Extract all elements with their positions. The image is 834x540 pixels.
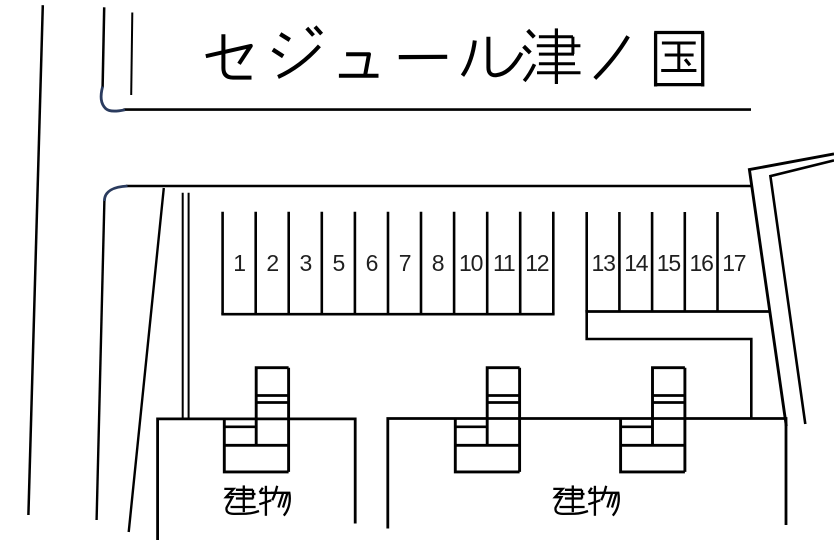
svg-text:12: 12 — [525, 250, 549, 276]
svg-text:10: 10 — [459, 250, 483, 276]
svg-text:13: 13 — [592, 250, 616, 276]
svg-text:6: 6 — [366, 250, 378, 276]
svg-text:17: 17 — [722, 250, 746, 276]
svg-text:2: 2 — [266, 250, 278, 276]
svg-text:5: 5 — [333, 250, 345, 276]
svg-text:8: 8 — [432, 250, 444, 276]
svg-text:14: 14 — [624, 250, 649, 276]
svg-text:1: 1 — [233, 250, 245, 276]
svg-text:15: 15 — [657, 250, 681, 276]
svg-text:11: 11 — [493, 250, 515, 276]
svg-text:3: 3 — [300, 250, 312, 276]
svg-text:7: 7 — [399, 250, 411, 276]
svg-text:16: 16 — [690, 250, 714, 276]
